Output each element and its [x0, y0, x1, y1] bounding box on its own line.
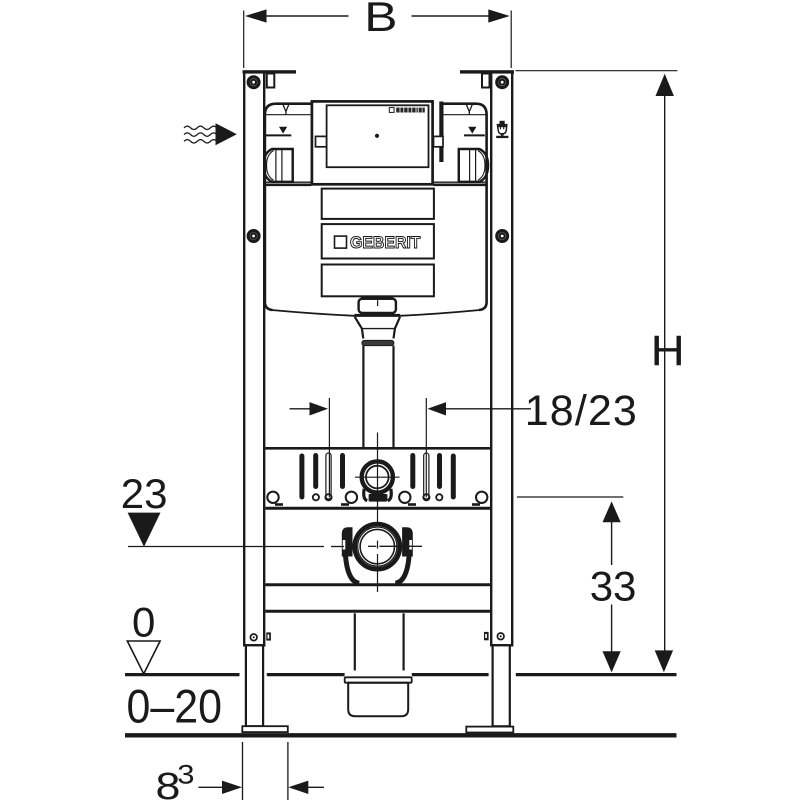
svg-text:3: 3 [177, 760, 194, 790]
svg-text:H: H [651, 326, 685, 375]
svg-text:0–20: 0–20 [127, 679, 223, 732]
svg-text:B: B [364, 0, 397, 40]
svg-text:GEBERIT: GEBERIT [350, 233, 421, 252]
svg-text:0: 0 [132, 599, 155, 646]
svg-text:18/23: 18/23 [525, 387, 638, 435]
svg-text:33: 33 [590, 562, 637, 609]
svg-text:23: 23 [121, 470, 168, 517]
